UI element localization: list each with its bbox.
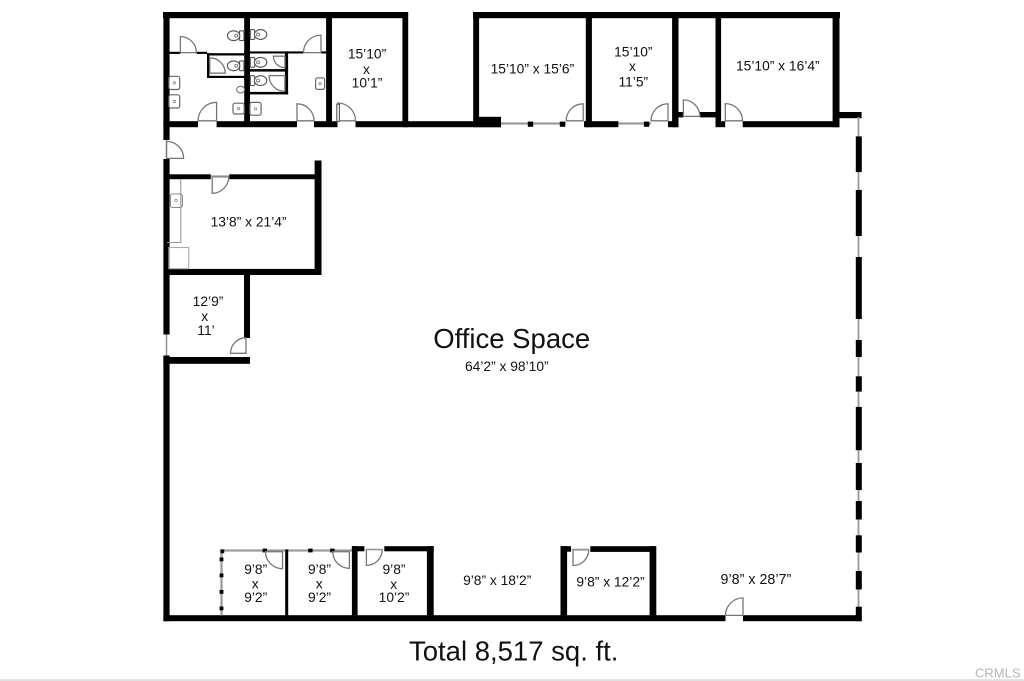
- svg-text:Total 8,517 sq. ft.: Total 8,517 sq. ft.: [409, 635, 618, 666]
- svg-text:9’8”: 9’8”: [382, 562, 405, 577]
- svg-text:15’10”: 15’10”: [348, 47, 387, 62]
- svg-text:11’5”: 11’5”: [618, 75, 648, 90]
- svg-text:9’8”: 9’8”: [308, 562, 331, 577]
- svg-text:9’2”: 9’2”: [308, 590, 331, 605]
- svg-text:9’8” x 12’2”: 9’8” x 12’2”: [576, 574, 645, 589]
- svg-text:15’10” x 15’6”: 15’10” x 15’6”: [491, 62, 575, 77]
- svg-text:12’9”: 12’9”: [193, 294, 224, 309]
- svg-text:10’2”: 10’2”: [379, 590, 410, 605]
- svg-text:Office Space: Office Space: [433, 323, 590, 354]
- svg-text:15’10”: 15’10”: [614, 45, 653, 60]
- svg-text:11’: 11’: [197, 323, 214, 338]
- svg-text:15’10” x 16’4”: 15’10” x 16’4”: [736, 58, 820, 73]
- svg-text:64’2” x 98’10”: 64’2” x 98’10”: [465, 359, 549, 374]
- svg-text:9’8”: 9’8”: [244, 562, 267, 577]
- svg-text:x: x: [363, 62, 370, 77]
- svg-text:x: x: [201, 309, 208, 324]
- svg-text:9’8” x 18’2”: 9’8” x 18’2”: [463, 573, 532, 588]
- svg-text:13’8” x 21’4”: 13’8” x 21’4”: [211, 215, 287, 230]
- svg-text:x: x: [629, 59, 636, 74]
- svg-text:10’1”: 10’1”: [352, 76, 383, 91]
- svg-text:9’8” x 28’7”: 9’8” x 28’7”: [721, 572, 792, 588]
- svg-text:x: x: [252, 576, 259, 591]
- svg-text:CRMLS: CRMLS: [975, 665, 1021, 680]
- svg-text:x: x: [316, 576, 323, 591]
- svg-text:9’2”: 9’2”: [244, 590, 267, 605]
